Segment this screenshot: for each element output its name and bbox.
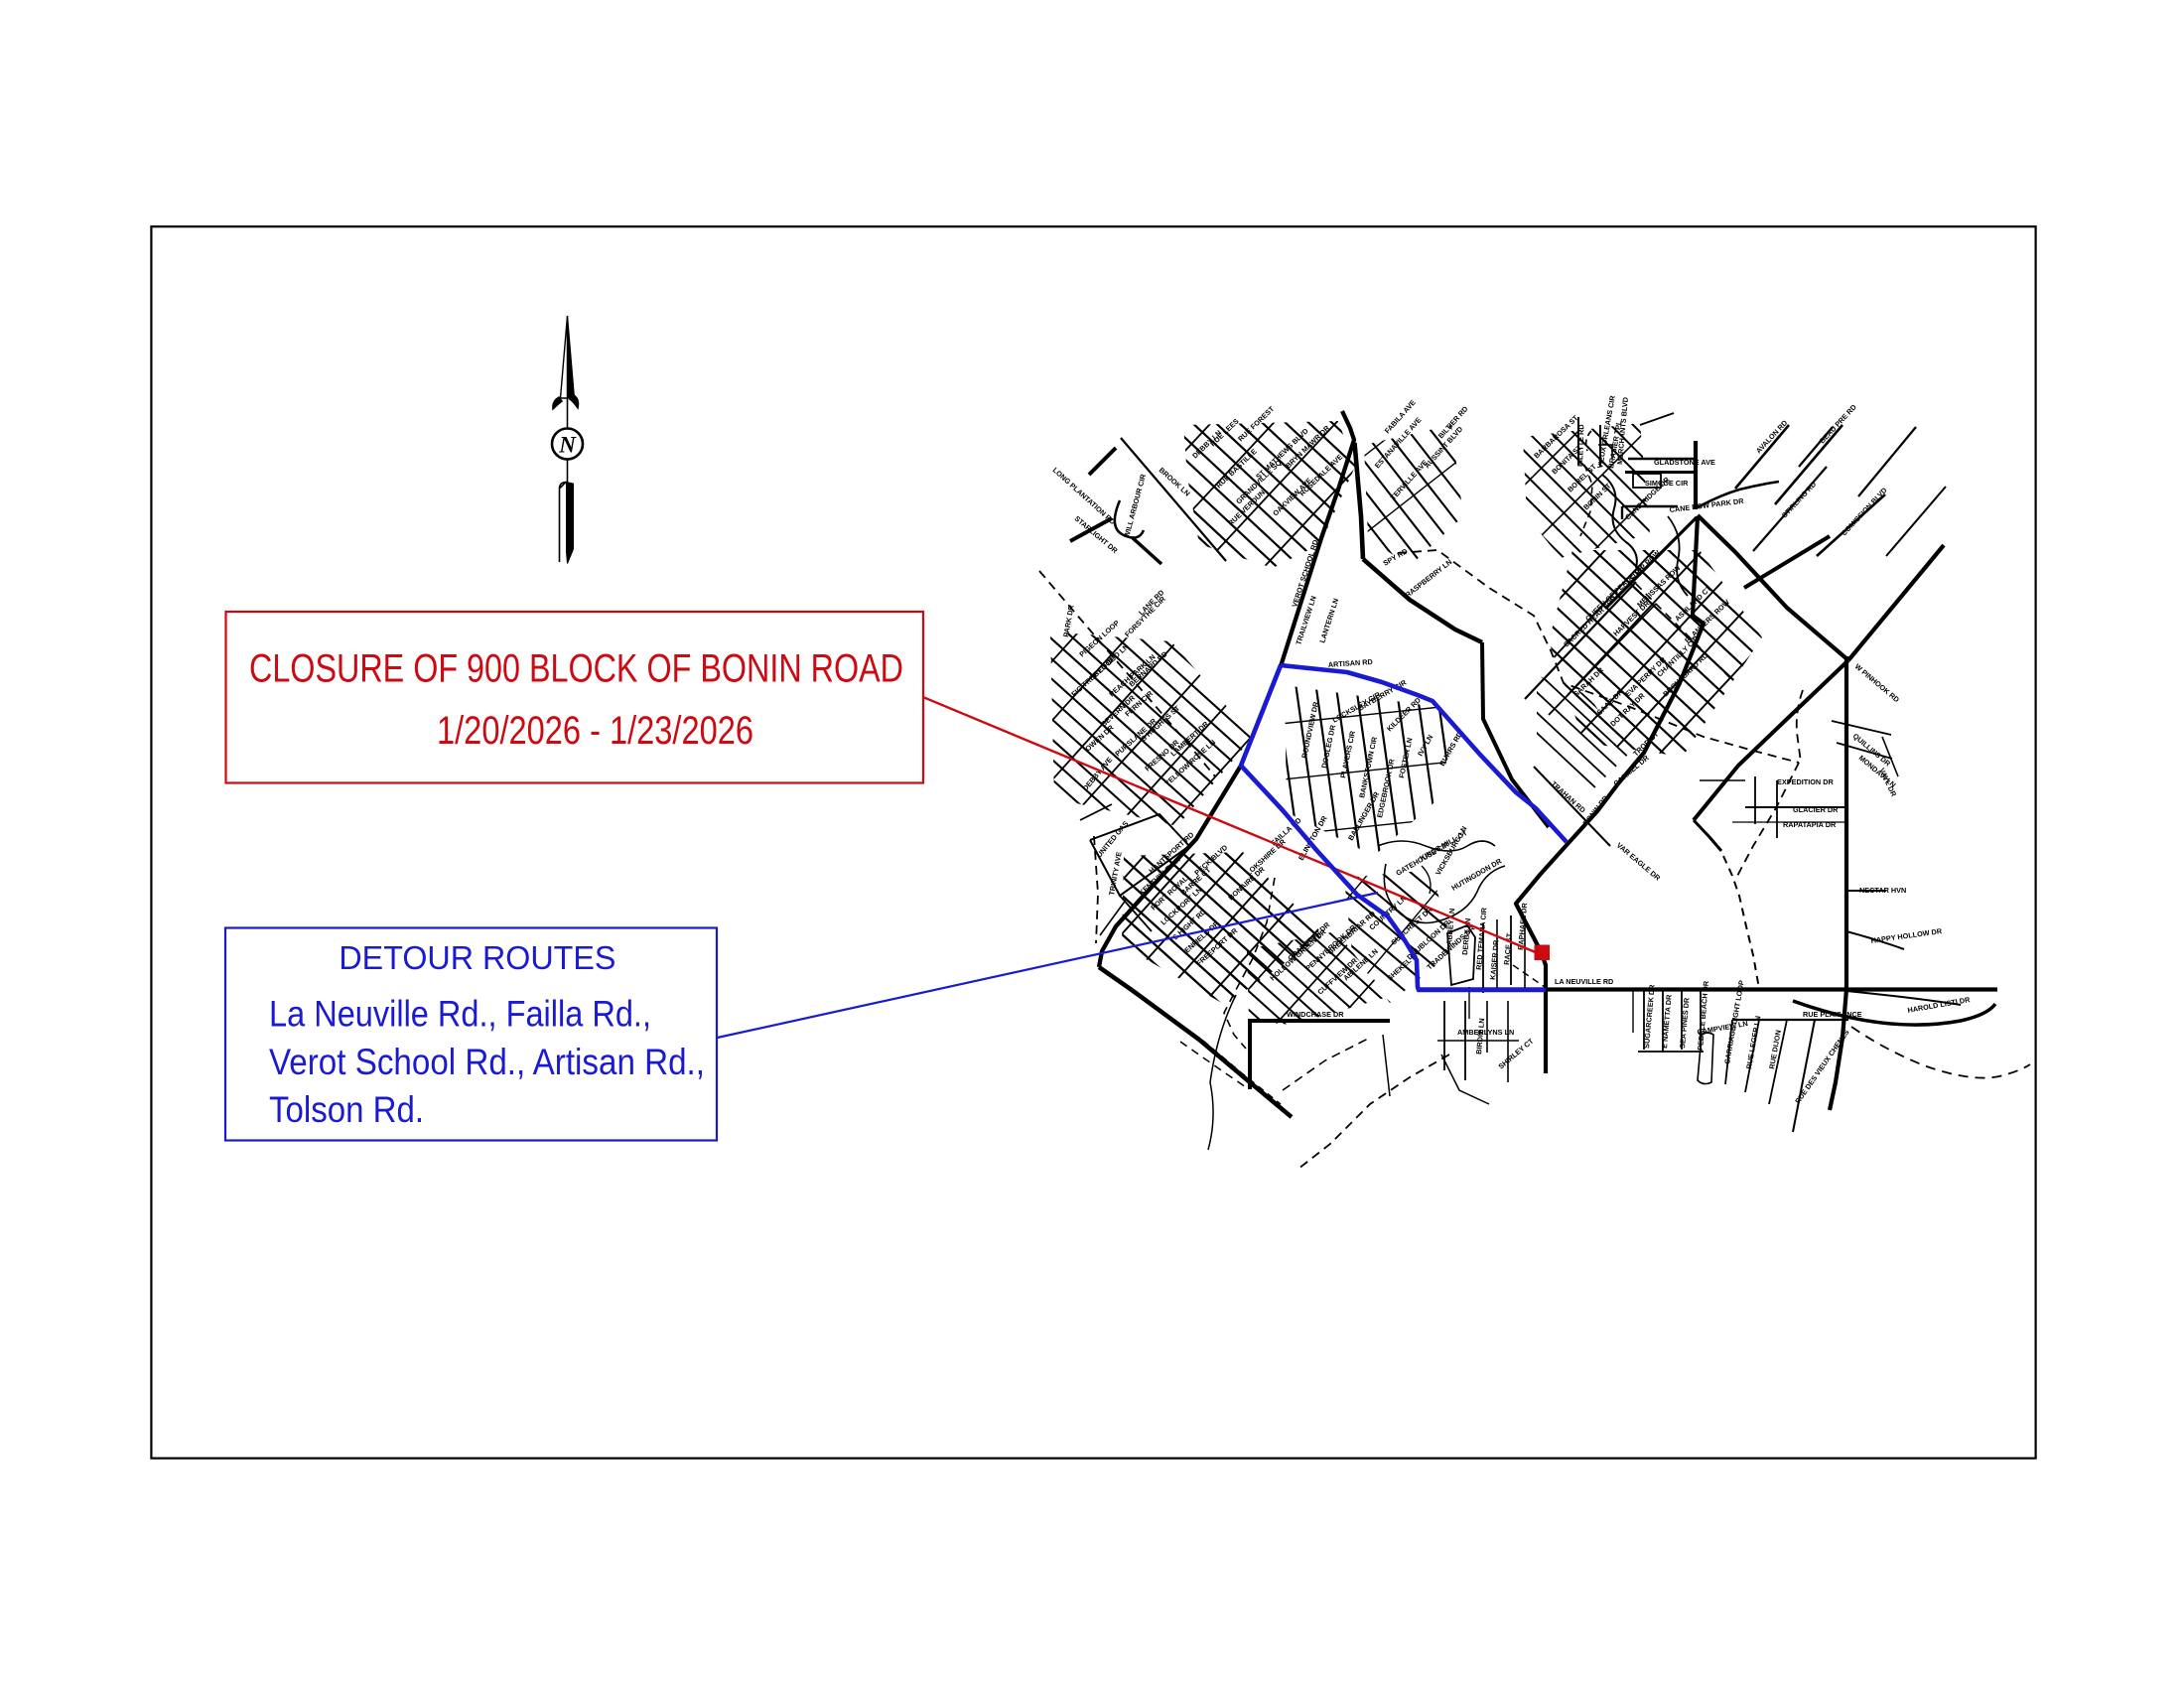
svg-text:La Neuville Rd., Failla Rd.,: La Neuville Rd., Failla Rd., — [269, 993, 651, 1035]
svg-text:NECTAR HVN: NECTAR HVN — [1859, 886, 1906, 895]
svg-text:DETOUR ROUTES: DETOUR ROUTES — [339, 939, 615, 976]
svg-text:1/20/2026 - 1/23/2026: 1/20/2026 - 1/23/2026 — [437, 709, 753, 753]
svg-text:N: N — [558, 433, 577, 458]
svg-text:SIMCOE CIR: SIMCOE CIR — [1645, 479, 1689, 488]
svg-text:WINDCHASE DR: WINDCHASE DR — [1287, 1010, 1344, 1019]
svg-text:CLOSURE OF 900 BLOCK OF BONIN: CLOSURE OF 900 BLOCK OF BONIN ROAD — [249, 647, 903, 691]
svg-text:EXPEDITION DR: EXPEDITION DR — [1777, 777, 1834, 786]
svg-text:LA NEUVILLE RD: LA NEUVILLE RD — [1555, 977, 1613, 986]
svg-text:Verot School Rd., Artisan Rd.,: Verot School Rd., Artisan Rd., — [269, 1041, 705, 1082]
svg-text:GLADSTONE AVE: GLADSTONE AVE — [1654, 458, 1715, 467]
svg-text:RAPATAPIA DR: RAPATAPIA DR — [1783, 820, 1837, 829]
svg-text:GLACIER DR: GLACIER DR — [1793, 805, 1839, 814]
svg-text:RUE PLAISANCE: RUE PLAISANCE — [1803, 1010, 1862, 1019]
svg-text:Tolson Rd.: Tolson Rd. — [269, 1088, 424, 1130]
svg-text:AMBERLYNS LN: AMBERLYNS LN — [1457, 1028, 1514, 1037]
